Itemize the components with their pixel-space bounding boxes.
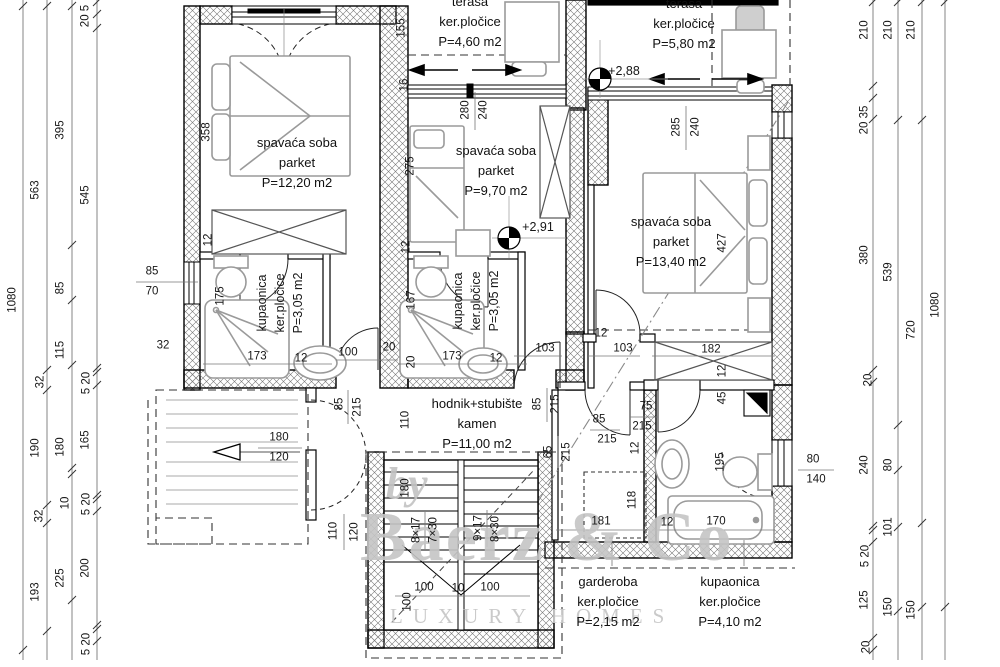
dimension-label: 165 xyxy=(80,430,92,449)
labels-layer: 10805633219032193395851151801022520 5545… xyxy=(0,0,1000,667)
dimension-label: 720 xyxy=(906,320,918,339)
plan-dimension-label: 181 xyxy=(591,516,610,528)
plan-dimension-label: 12 xyxy=(401,241,413,254)
plan-dimension-label: 195 xyxy=(715,452,727,471)
plan-dimension-label: 175 xyxy=(215,286,227,305)
plan-dimension-label: 12 xyxy=(490,353,503,365)
dimension-label: 180 xyxy=(55,437,67,456)
plan-dimension-label: 12 xyxy=(295,353,308,365)
plan-dimension-label: 12 xyxy=(595,328,608,340)
room-label-bathroom-1: ker.pločice xyxy=(274,273,287,332)
plan-dimension-label: 240 xyxy=(478,100,490,119)
plan-dimension-label: 65 xyxy=(543,446,555,459)
dimension-label: 1080 xyxy=(7,287,19,313)
plan-dimension-label: 103 xyxy=(535,343,554,355)
plan-dimension-label: 182 xyxy=(701,344,720,356)
plan-dimension-label: 70 xyxy=(146,286,159,298)
dimension-label: 210 xyxy=(883,20,895,39)
dimension-label: 190 xyxy=(30,438,42,457)
plan-dimension-label: 275 xyxy=(405,156,417,175)
dimension-label: 380 xyxy=(859,245,871,264)
room-label-hallway: hodnik+stubištekamenP=11,00 m2 xyxy=(432,394,523,454)
dimension-label: 125 xyxy=(859,590,871,609)
room-label-wardrobe: garderobaker.pločiceP=2,15 m2 xyxy=(576,572,639,632)
dimension-label: 101 xyxy=(883,517,895,536)
dimension-label: 193 xyxy=(30,582,42,601)
plan-dimension-label: 32 xyxy=(157,340,170,352)
plan-dimension-label: 110 xyxy=(400,411,412,429)
plan-dimension-label: 215 xyxy=(561,442,573,461)
floor-plan-page: by Baerz & Co LUXURY HOMES 1080563321903… xyxy=(0,0,1000,667)
plan-dimension-label: 118 xyxy=(627,491,639,509)
room-label-bathroom-2: P=3,05 m2 xyxy=(488,271,501,332)
plan-dimension-label: 85 xyxy=(593,414,606,426)
plan-dimension-label: 12 xyxy=(630,442,642,455)
plan-dimension-label: 8×30 xyxy=(490,516,502,542)
elevation-label: +2,91 xyxy=(522,221,554,234)
plan-dimension-label: 100 xyxy=(338,347,357,359)
dimension-label: 210 xyxy=(859,20,871,39)
room-label-terrace-1: terasaker.pločiceP=4,60 m2 xyxy=(438,0,501,52)
dimension-label: 1080 xyxy=(930,292,942,318)
dimension-label: 20 5 xyxy=(80,5,92,27)
dimension-label: 80 xyxy=(883,459,895,472)
elevation-label: +2,88 xyxy=(608,65,640,78)
dimension-label: 10 xyxy=(60,497,72,510)
plan-dimension-label: 12 xyxy=(661,517,674,529)
dimension-label: 20 xyxy=(863,374,875,387)
plan-dimension-label: 80 xyxy=(807,454,820,466)
plan-dimension-label: 10 xyxy=(452,583,465,595)
plan-dimension-label: 20 xyxy=(406,356,418,369)
room-label-bathroom-1: P=3,05 m2 xyxy=(292,273,305,334)
dimension-label: 563 xyxy=(30,180,42,199)
plan-dimension-label: 75 xyxy=(640,401,653,413)
plan-dimension-label: 12 xyxy=(717,365,729,378)
room-label-bedroom-3: spavaća sobaparketP=13,40 m2 xyxy=(631,212,711,272)
dimension-label: 115 xyxy=(55,341,67,359)
plan-dimension-label: 120 xyxy=(269,452,288,464)
plan-dimension-label: 215 xyxy=(597,434,616,446)
room-label-bedroom-1: spavaća sobaparketP=12,20 m2 xyxy=(257,133,337,193)
dimension-label: 240 xyxy=(859,455,871,474)
plan-dimension-label: 240 xyxy=(690,117,702,136)
dimension-label: 200 xyxy=(80,558,92,577)
dimension-label: 32 xyxy=(35,376,47,389)
plan-dimension-label: 85 xyxy=(532,398,544,411)
dimension-label: 5 20 xyxy=(81,372,93,394)
plan-dimension-label: 7×30 xyxy=(428,517,440,543)
plan-dimension-label: 103 xyxy=(613,343,632,355)
plan-dimension-label: 45 xyxy=(717,392,729,405)
plan-dimension-label: 85 xyxy=(334,398,346,411)
plan-dimension-label: 155 xyxy=(396,18,408,37)
plan-dimension-label: 120 xyxy=(349,522,361,541)
dimension-label: 20 35 xyxy=(859,106,871,135)
plan-dimension-label: 180 xyxy=(269,432,288,444)
dimension-label: 545 xyxy=(80,185,92,204)
dimension-label: 539 xyxy=(883,262,895,281)
plan-dimension-label: 9×17 xyxy=(473,515,485,541)
plan-dimension-label: 100 xyxy=(414,582,433,594)
plan-dimension-label: 215 xyxy=(632,421,651,433)
room-label-bathroom-1: kupaonica xyxy=(256,275,269,332)
room-label-bathroom-3: kupaonicaker.pločiceP=4,10 m2 xyxy=(698,572,761,632)
plan-dimension-label: 170 xyxy=(706,516,725,528)
plan-dimension-label: 100 xyxy=(402,592,414,611)
plan-dimension-label: 12 xyxy=(203,234,215,247)
room-label-terrace-2: terasaker.pločiceP=5,80 m2 xyxy=(652,0,715,54)
dimension-label: 225 xyxy=(55,568,67,587)
plan-dimension-label: 16 xyxy=(399,79,411,92)
dimension-label: 210 xyxy=(906,20,918,39)
room-label-bathroom-2: ker.pločice xyxy=(470,271,483,330)
plan-dimension-label: 280 xyxy=(460,100,472,119)
plan-dimension-label: 20 xyxy=(383,342,396,354)
dimension-label: 5 20 xyxy=(860,545,872,567)
dimension-label: 150 xyxy=(906,600,918,619)
plan-dimension-label: 173 xyxy=(247,351,266,363)
plan-dimension-label: 285 xyxy=(671,117,683,136)
plan-dimension-label: 173 xyxy=(442,351,461,363)
dimension-label: 5 20 xyxy=(81,493,93,515)
dimension-label: 395 xyxy=(55,120,67,139)
plan-dimension-label: 167 xyxy=(406,290,418,309)
plan-dimension-label: 427 xyxy=(717,233,729,252)
plan-dimension-label: 180 xyxy=(400,478,412,497)
plan-dimension-label: 215 xyxy=(550,394,562,413)
plan-dimension-label: 215 xyxy=(352,397,364,416)
dimension-label: 150 xyxy=(883,597,895,616)
dimension-label: 32 xyxy=(34,510,46,523)
plan-dimension-label: 110 xyxy=(328,522,340,540)
plan-dimension-label: 85 xyxy=(146,266,159,278)
dimension-label: 20 xyxy=(861,641,873,654)
dimension-label: 85 xyxy=(55,282,67,295)
room-label-bathroom-2: kupaonica xyxy=(452,273,465,330)
plan-dimension-label: 358 xyxy=(201,122,213,141)
room-label-bedroom-2: spavaća sobaparketP=9,70 m2 xyxy=(456,141,536,201)
plan-dimension-label: 140 xyxy=(806,474,825,486)
plan-dimension-label: 100 xyxy=(480,582,499,594)
dimension-label: 5 20 xyxy=(81,633,93,655)
plan-dimension-label: 8×17 xyxy=(411,517,423,543)
